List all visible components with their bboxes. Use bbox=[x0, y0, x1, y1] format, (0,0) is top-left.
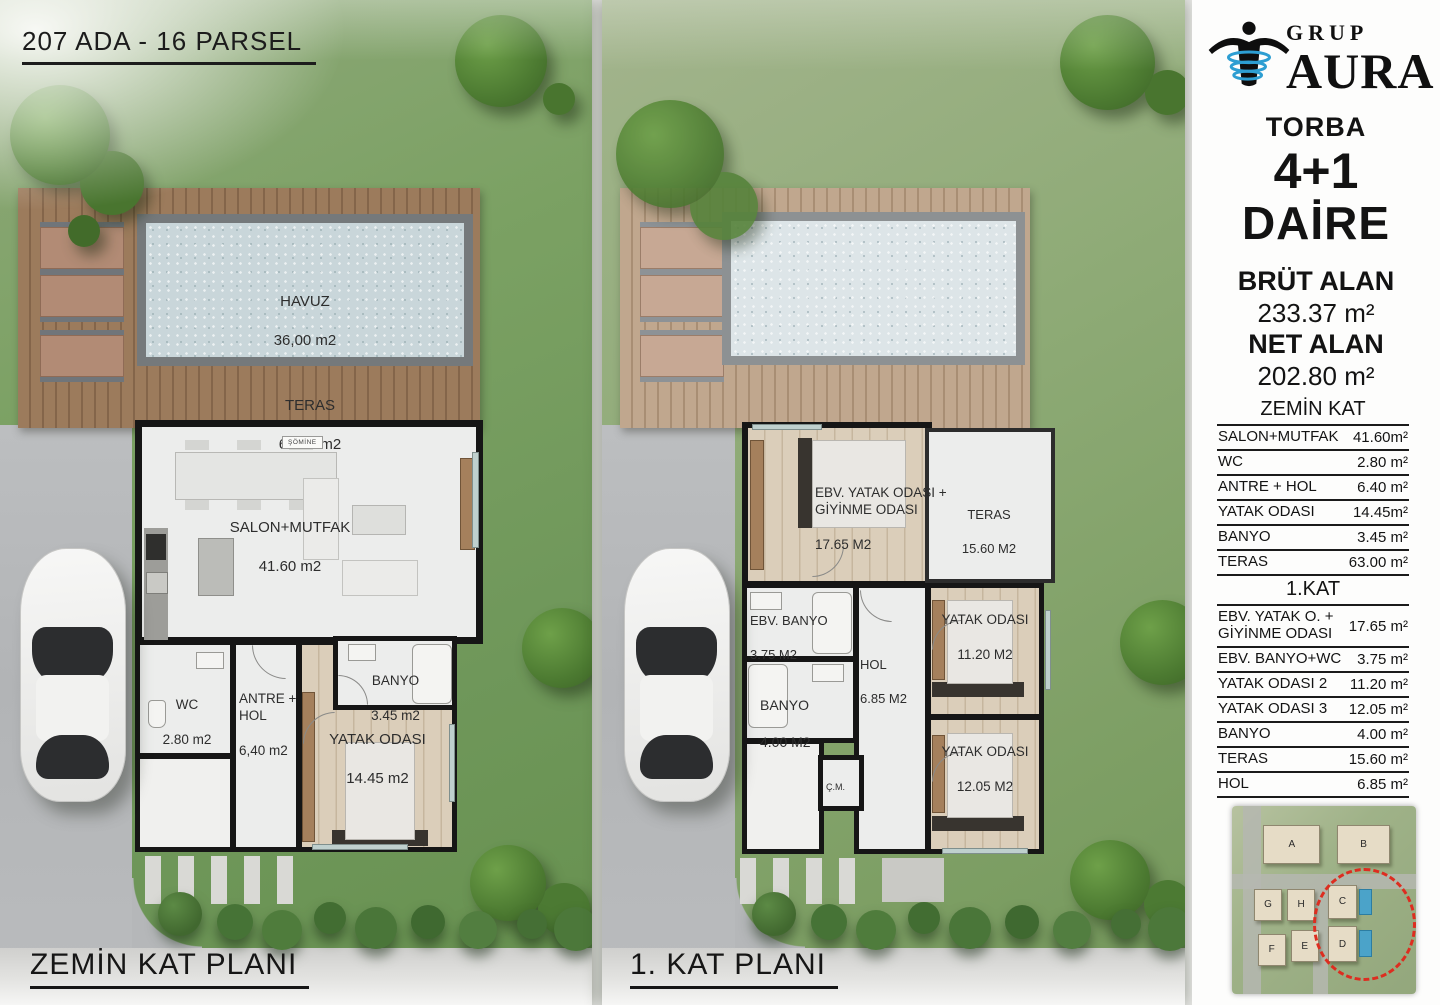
ground-plan-caption: ZEMİN KAT PLANI bbox=[30, 948, 309, 989]
window bbox=[942, 848, 1028, 854]
net-area-value: 202.80 m² bbox=[1192, 361, 1440, 392]
siteplan-building-a: A bbox=[1263, 825, 1320, 865]
first-floor-table: EBV. YATAK O. + GİYİNME ODASI17.65 m² EB… bbox=[1217, 604, 1409, 798]
table-row: YATAK ODASI 211.20 m² bbox=[1217, 671, 1409, 696]
net-area-label: NET ALAN bbox=[1192, 329, 1440, 360]
fireplace-label: ŞÖMİNE bbox=[282, 436, 323, 449]
ground-floor-table: SALON+MUTFAK41.60m² WC2.80 m² ANTRE + HO… bbox=[1217, 424, 1409, 576]
table-row: TERAS15.60 m² bbox=[1217, 746, 1409, 771]
floorplan-sheet: HAVUZ 36,00 m2 TERAS 63.00 m2 bbox=[0, 0, 1440, 1005]
gross-area-label: BRÜT ALAN bbox=[1192, 266, 1440, 297]
car-roof bbox=[36, 675, 109, 741]
bedroom-label: YATAK ODASI 14.45 m2 bbox=[305, 710, 450, 808]
tree bbox=[455, 15, 547, 107]
first-table-title: 1.KAT bbox=[1217, 578, 1409, 601]
pool bbox=[722, 212, 1025, 365]
terrace-label: TERAS 15.60 M2 bbox=[930, 490, 1048, 574]
site-plan-map: A B G H C F E D bbox=[1232, 806, 1416, 994]
tree bbox=[470, 845, 546, 921]
table-row: BANYO3.45 m² bbox=[1217, 524, 1409, 549]
table-row: TERAS63.00 m² bbox=[1217, 549, 1409, 576]
siteplan-building-b: B bbox=[1337, 825, 1391, 865]
pool-label: HAVUZ 36,00 m2 bbox=[230, 272, 380, 370]
sun-lounger bbox=[40, 270, 124, 322]
hall-label: HOL 6.85 M2 bbox=[860, 640, 920, 724]
table-row: ANTRE + HOL6.40 m² bbox=[1217, 474, 1409, 499]
siteplan-building-h: H bbox=[1287, 889, 1315, 921]
tree bbox=[1060, 15, 1155, 110]
master-bath-label: EBV. BANYO 3.75 M2 bbox=[750, 596, 850, 680]
highlight-circle bbox=[1313, 868, 1416, 981]
table-row: EBV. YATAK O. + GİYİNME ODASI17.65 m² bbox=[1217, 604, 1409, 646]
entry-path bbox=[740, 858, 856, 904]
parcel-title: 207 ADA - 16 PARSEL bbox=[22, 26, 316, 65]
logo-figure-icon bbox=[1206, 10, 1292, 107]
window bbox=[752, 424, 822, 430]
hedge-row bbox=[752, 892, 796, 936]
entry-slab bbox=[882, 858, 944, 902]
table-row: YATAK ODASI14.45m² bbox=[1217, 499, 1409, 524]
unit-word: DAİRE bbox=[1192, 196, 1440, 250]
first-floor-panel: EBV. YATAK ODASI + GİYİNME ODASI 17.65 M… bbox=[602, 0, 1185, 1005]
table-row: WC2.80 m² bbox=[1217, 449, 1409, 474]
window bbox=[472, 452, 479, 548]
ground-table-title: ZEMİN KAT bbox=[1217, 398, 1409, 421]
staircase bbox=[135, 754, 235, 852]
logo-aura-text: AURA bbox=[1286, 46, 1434, 96]
table-row: EBV. BANYO+WC3.75 m² bbox=[1217, 646, 1409, 671]
table-row: SALON+MUTFAK41.60m² bbox=[1217, 424, 1409, 449]
tree bbox=[616, 100, 724, 208]
brand-logo: GRUP AURA bbox=[1206, 10, 1430, 107]
siteplan-building-f: F bbox=[1258, 934, 1286, 966]
entry-hall-label: ANTRE + HOL 6,40 m2 bbox=[239, 672, 299, 777]
sun-lounger bbox=[640, 330, 724, 382]
living-room-label: SALON+MUTFAK 41.60 m2 bbox=[210, 498, 370, 596]
sink bbox=[146, 572, 168, 594]
sun-lounger bbox=[640, 270, 724, 322]
sun-lounger bbox=[640, 222, 724, 274]
logo-wordmark: GRUP AURA bbox=[1286, 22, 1434, 96]
wardrobe bbox=[750, 440, 764, 570]
logo-grup-text: GRUP bbox=[1286, 22, 1434, 44]
tree bbox=[1070, 840, 1150, 920]
sun-lounger bbox=[40, 222, 124, 274]
wc-sink bbox=[196, 652, 224, 669]
tree bbox=[10, 85, 110, 185]
gross-area-value: 233.37 m² bbox=[1192, 298, 1440, 329]
car bbox=[624, 548, 730, 802]
tree bbox=[1120, 600, 1185, 685]
bed-platform bbox=[932, 682, 1024, 697]
siteplan-building-g: G bbox=[1254, 889, 1282, 921]
ground-floor-panel: HAVUZ 36,00 m2 TERAS 63.00 m2 bbox=[0, 0, 592, 1005]
tree bbox=[522, 608, 592, 688]
wc-label: WC 2.80 m2 bbox=[145, 678, 229, 766]
project-name: TORBA bbox=[1192, 112, 1440, 143]
bedroom2-label: YATAK ODASI 11.20 M2 bbox=[928, 593, 1042, 681]
unit-type: 4+1 bbox=[1192, 142, 1440, 200]
car bbox=[20, 548, 126, 802]
bathroom-label: BANYO 4.00 M2 bbox=[760, 678, 850, 769]
table-row: YATAK ODASI 312.05 m² bbox=[1217, 696, 1409, 721]
car-rear-window bbox=[36, 735, 109, 779]
terrace-label: TERAS 63.00 m2 bbox=[235, 376, 385, 474]
info-sidebar: GRUP AURA TORBA 4+1 DAİRE BRÜT ALAN 233.… bbox=[1192, 0, 1440, 1005]
stove bbox=[146, 534, 166, 560]
table-row: HOL6.85 m² bbox=[1217, 771, 1409, 798]
car-roof bbox=[640, 675, 713, 741]
bed-headboard bbox=[798, 438, 812, 528]
hedge-row bbox=[158, 892, 202, 936]
window bbox=[1045, 610, 1051, 690]
sun-lounger bbox=[40, 330, 124, 382]
bedroom3-label: YATAK ODASI 12.05 M2 bbox=[928, 725, 1042, 813]
car-rear-window bbox=[640, 735, 713, 779]
window bbox=[312, 844, 408, 850]
closet-label: Ç.M. bbox=[826, 770, 866, 805]
first-plan-caption: 1. KAT PLANI bbox=[630, 948, 838, 989]
bed-platform bbox=[932, 816, 1024, 831]
table-row: BANYO4.00 m² bbox=[1217, 721, 1409, 746]
